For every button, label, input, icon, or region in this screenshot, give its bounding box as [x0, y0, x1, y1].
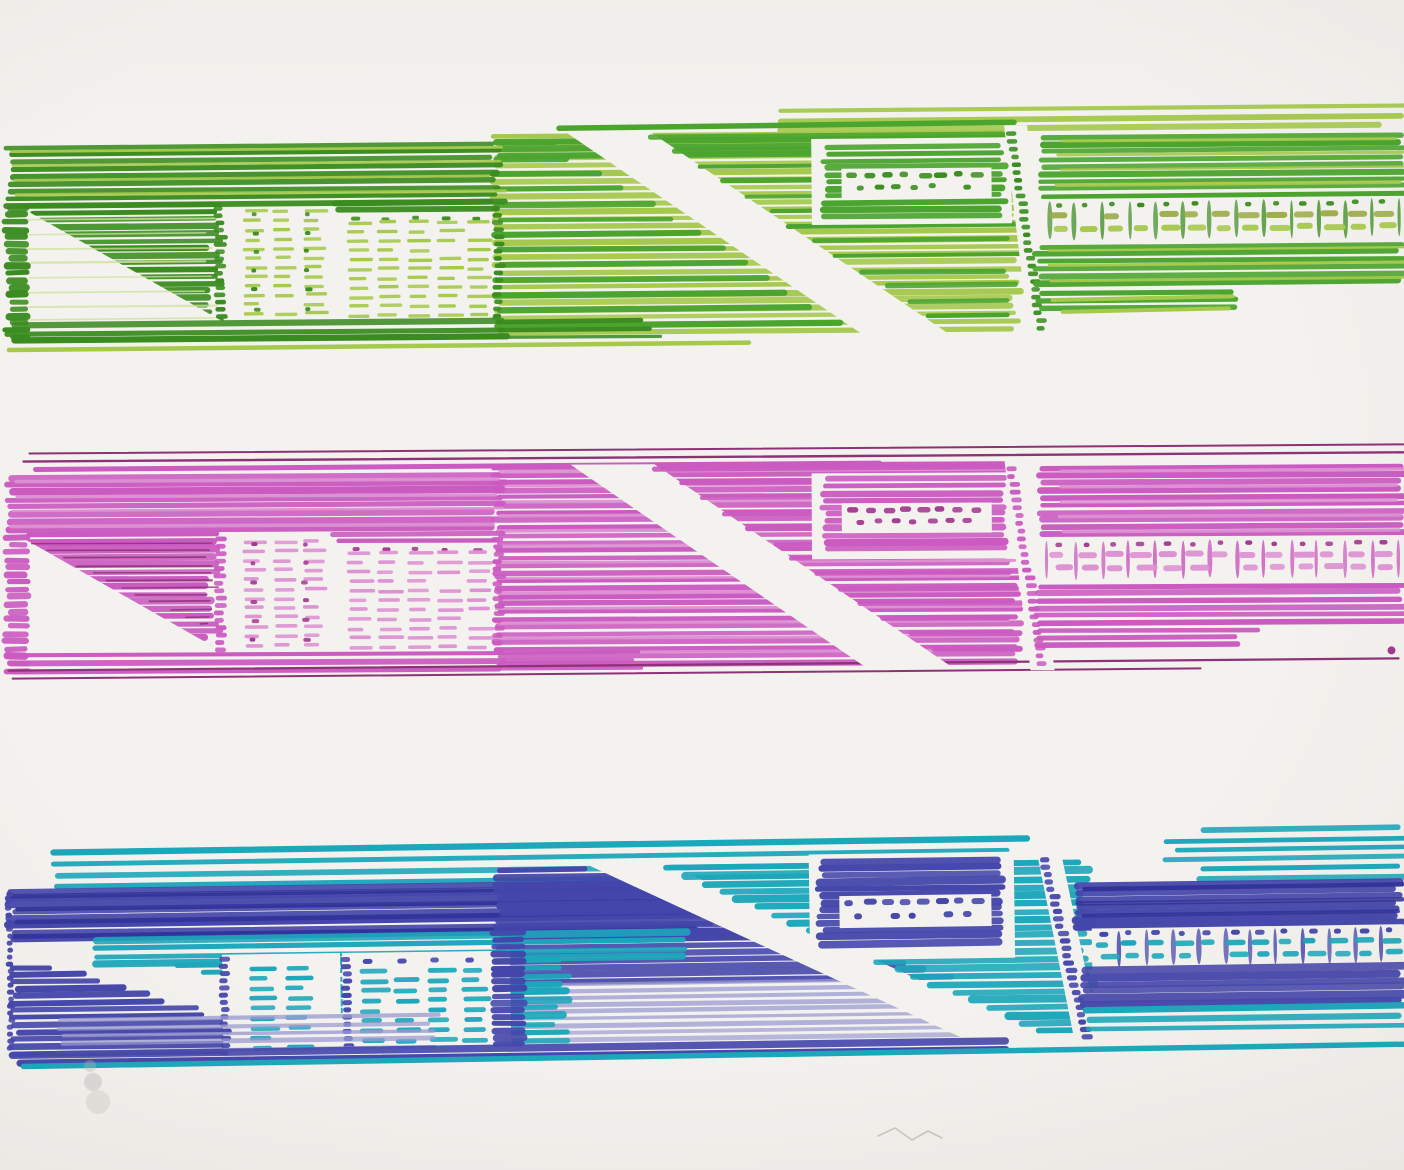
- scanned-plotter-drawing: [0, 0, 1404, 1170]
- artwork-svg: [0, 0, 1404, 1170]
